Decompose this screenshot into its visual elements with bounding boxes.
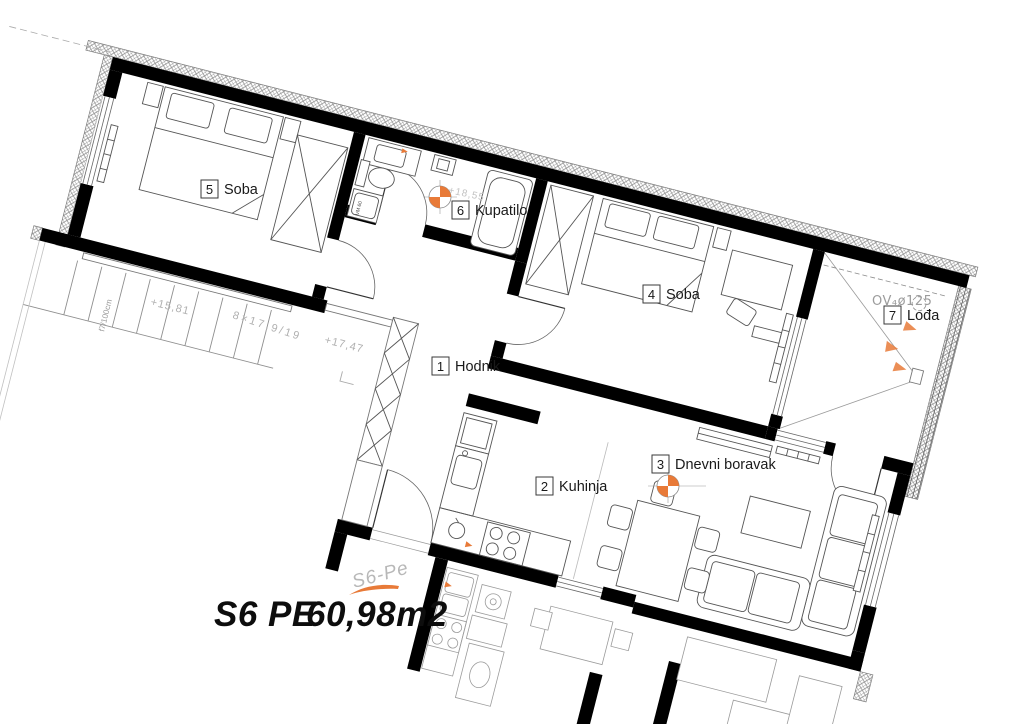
room-label-kupatilo-6: 6 Kupatilo — [452, 201, 527, 219]
svg-text:Hodnik: Hodnik — [455, 359, 501, 375]
svg-text:6: 6 — [457, 203, 464, 218]
svg-text:7: 7 — [889, 308, 896, 323]
svg-text:Lođa: Lođa — [907, 308, 940, 324]
svg-text:4: 4 — [648, 287, 655, 302]
plan-title-code: S6 PE — [214, 595, 317, 634]
floorplan-page: VM 60 — [0, 0, 1024, 724]
floorplan-canvas: VM 60 — [0, 0, 1024, 724]
vent-duct-label: OV₄ø125 — [872, 294, 932, 309]
svg-text:2: 2 — [541, 479, 548, 494]
room-label-soba-5: 5 Soba — [201, 180, 259, 198]
svg-text:Kuhinja: Kuhinja — [559, 479, 608, 495]
svg-text:Soba: Soba — [224, 182, 259, 198]
svg-text:Kupatilo: Kupatilo — [475, 203, 527, 219]
room-label-kuhinja-2: 2 Kuhinja — [536, 477, 608, 495]
plan-title-area: 60,98m2 — [306, 595, 448, 634]
svg-text:5: 5 — [206, 182, 213, 197]
svg-text:Dnevni boravak: Dnevni boravak — [675, 457, 776, 473]
svg-text:1: 1 — [437, 359, 444, 374]
room-label-hodnik-1: 1 Hodnik — [432, 357, 501, 375]
svg-text:3: 3 — [657, 457, 664, 472]
room-label-soba-4: 4 Soba — [643, 285, 701, 303]
svg-text:Soba: Soba — [666, 287, 701, 303]
